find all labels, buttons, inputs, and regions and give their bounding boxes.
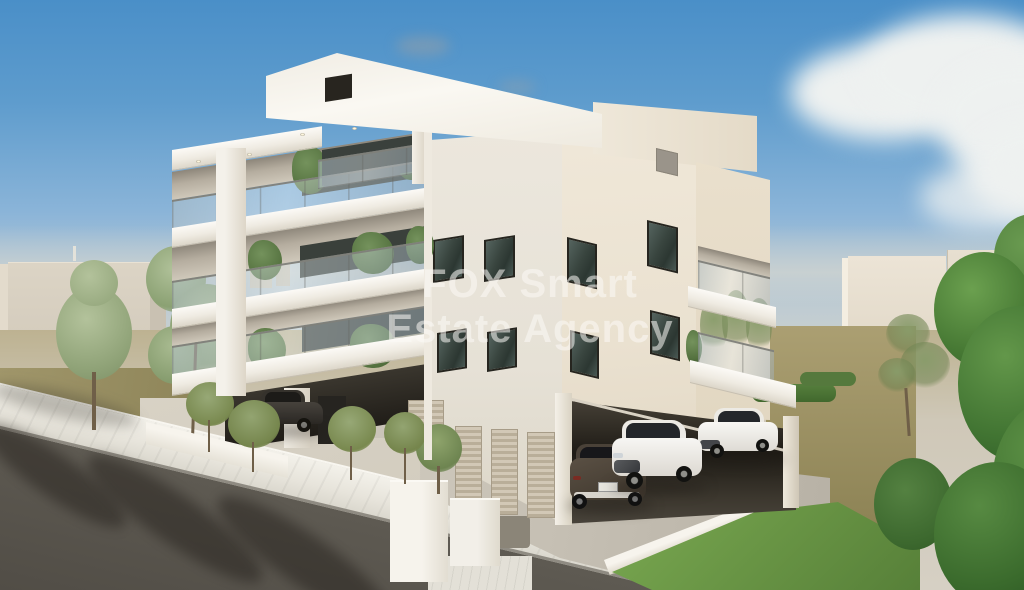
soffit-downlight bbox=[352, 127, 357, 130]
watermark: FOX Smart Estate Agency bbox=[330, 262, 730, 352]
cloud-wisp bbox=[396, 36, 450, 56]
architectural-render: FOX Smart Estate Agency bbox=[0, 0, 1024, 590]
yard-tree-trunk bbox=[404, 448, 406, 484]
wheel bbox=[628, 492, 642, 506]
car-shadow bbox=[696, 454, 786, 464]
wheel bbox=[710, 444, 724, 458]
structural-fin bbox=[216, 148, 246, 396]
wheel bbox=[676, 466, 692, 482]
car-white-suv bbox=[612, 420, 706, 494]
car-grille bbox=[614, 460, 640, 473]
yard-tree bbox=[328, 406, 376, 452]
car-windows bbox=[626, 423, 680, 439]
planter-tree-trunk bbox=[437, 466, 440, 494]
yard-tree-trunk bbox=[350, 446, 352, 480]
rooftop-door bbox=[656, 148, 678, 176]
soffit-downlight bbox=[196, 160, 201, 163]
wheel bbox=[572, 494, 587, 509]
yard-tree bbox=[228, 400, 280, 448]
parking-pillar bbox=[783, 416, 799, 508]
wheel bbox=[626, 472, 643, 489]
tree-left-edge bbox=[70, 260, 118, 306]
planter-box bbox=[450, 498, 500, 566]
watermark-line2: Estate Agency bbox=[330, 307, 730, 352]
yard-tree-trunk bbox=[208, 420, 210, 452]
distant-spire bbox=[73, 246, 76, 261]
soffit-downlight bbox=[247, 153, 252, 156]
hedge bbox=[800, 372, 856, 386]
watermark-line1: FOX Smart bbox=[330, 262, 730, 307]
tree-left-edge-trunk bbox=[92, 372, 96, 430]
car-white-sedan bbox=[698, 408, 782, 464]
planter-box bbox=[390, 480, 448, 582]
roof-recess bbox=[325, 74, 352, 102]
soffit-downlight bbox=[300, 133, 305, 136]
storage-door bbox=[527, 432, 555, 518]
right-wispy-tree bbox=[878, 358, 916, 392]
wheel bbox=[756, 439, 769, 452]
car-taillight bbox=[573, 476, 581, 480]
car-shadow bbox=[610, 482, 708, 493]
car-headlight bbox=[613, 453, 623, 458]
yard-tree-trunk bbox=[252, 442, 254, 472]
